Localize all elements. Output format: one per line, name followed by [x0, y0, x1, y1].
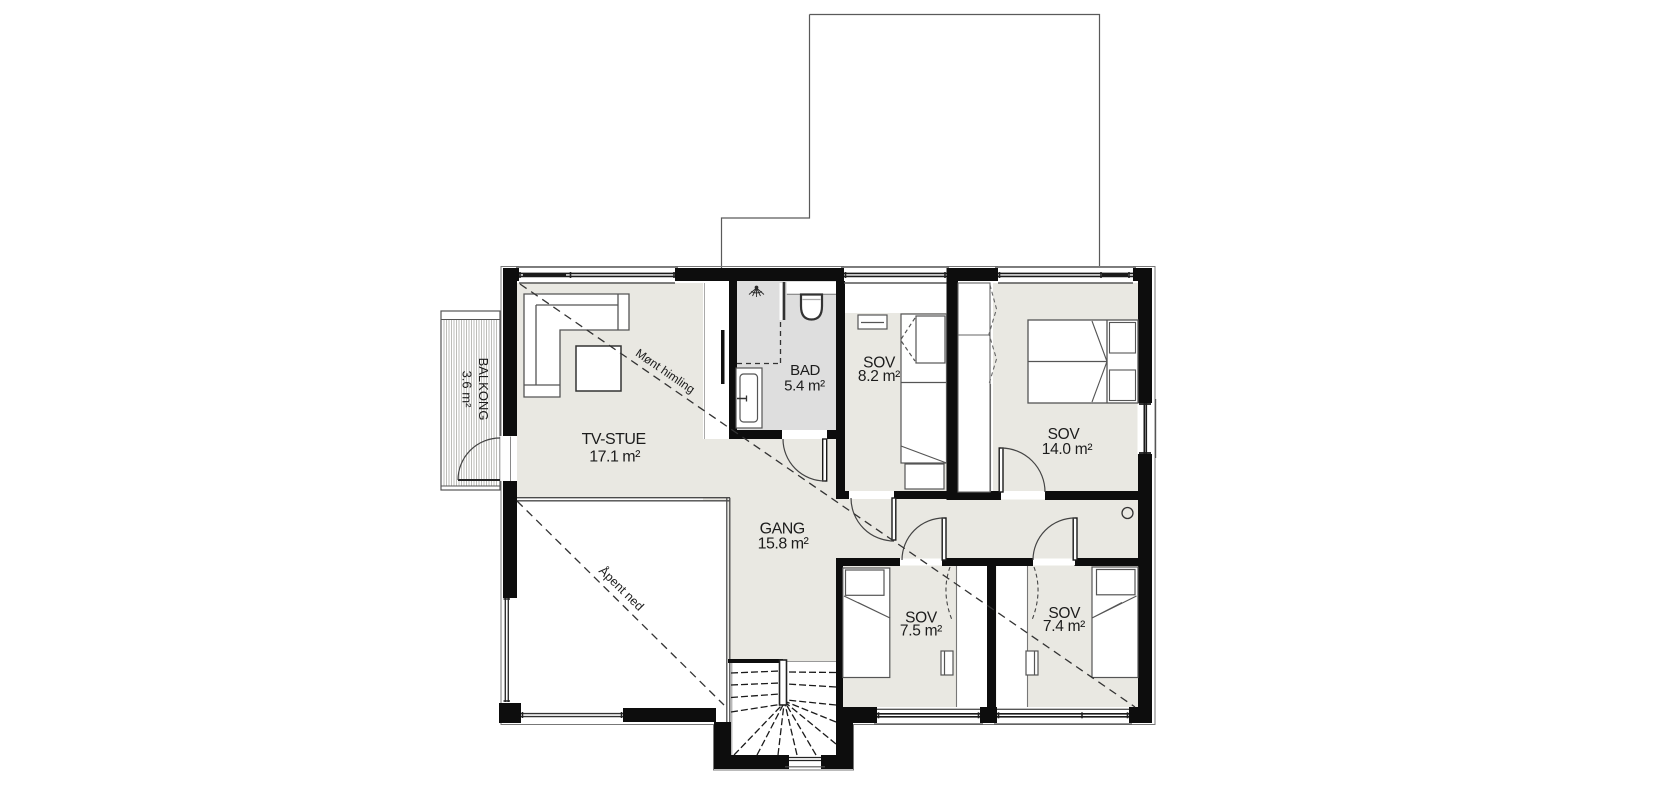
- svg-text:3.6 m²: 3.6 m²: [460, 371, 475, 409]
- svg-text:8.2 m²: 8.2 m²: [858, 368, 900, 385]
- svg-text:14.0 m²: 14.0 m²: [1042, 441, 1093, 458]
- svg-text:TV-STUE: TV-STUE: [582, 431, 646, 448]
- svg-text:5.4 m²: 5.4 m²: [784, 378, 825, 395]
- svg-text:7.4 m²: 7.4 m²: [1043, 618, 1085, 635]
- svg-text:7.5 m²: 7.5 m²: [900, 623, 942, 640]
- svg-text:17.1 m²: 17.1 m²: [589, 448, 641, 465]
- svg-text:15.8 m²: 15.8 m²: [758, 536, 810, 553]
- svg-text:BALKONG: BALKONG: [476, 358, 491, 421]
- svg-text:BAD: BAD: [790, 362, 820, 379]
